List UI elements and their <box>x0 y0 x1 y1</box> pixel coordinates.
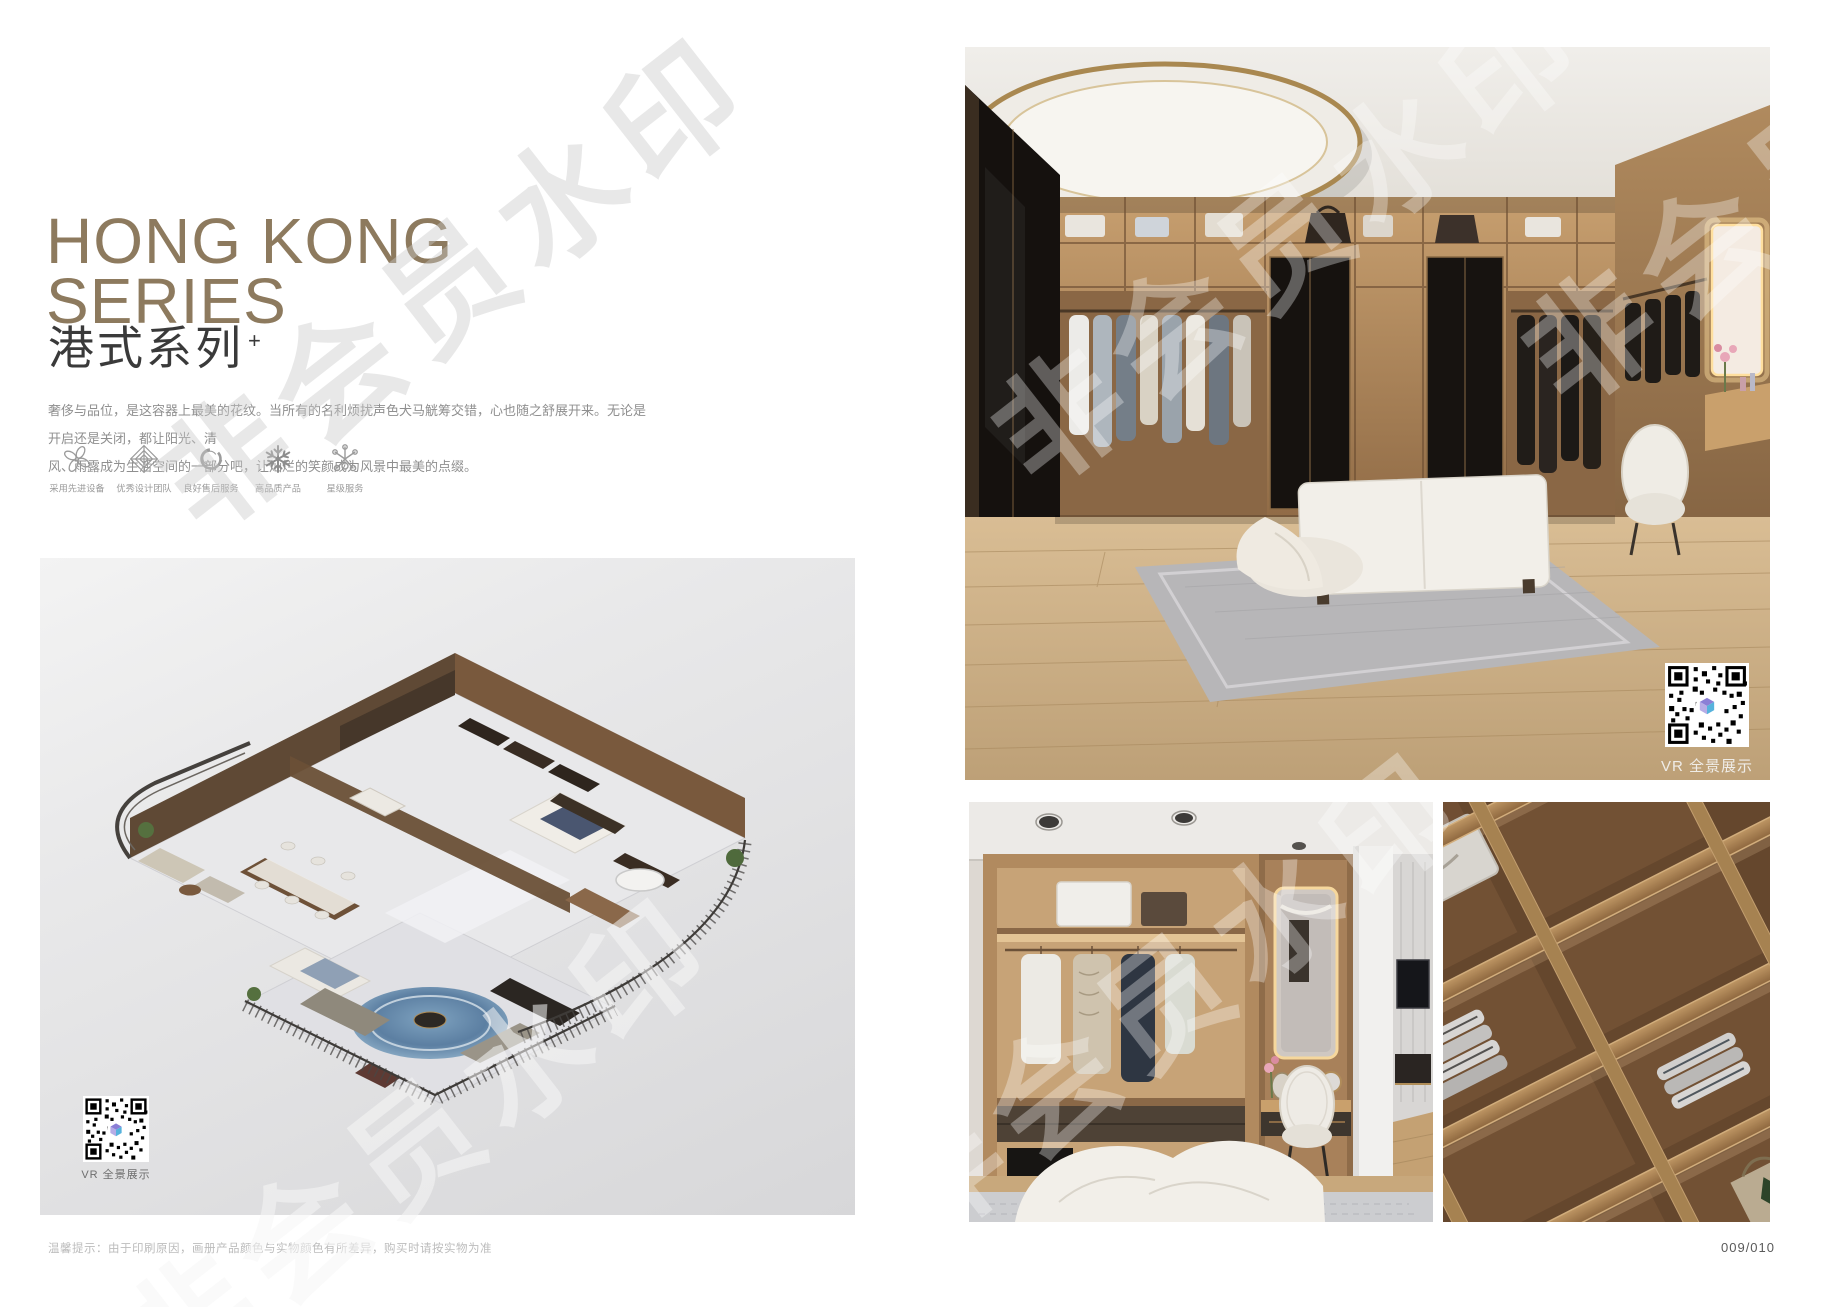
pinwheel-icon <box>60 442 94 476</box>
catalog-page: HONG KONG SERIES 港式系列+ 奢侈与品位，是这容器上最美的花纹。… <box>0 0 1836 1307</box>
vanity-corner-photo <box>969 802 1433 1222</box>
qr-code-image <box>1665 663 1749 747</box>
feature-label: 星级服务 <box>315 481 376 495</box>
feature-label: 优秀设计团队 <box>114 481 175 495</box>
floorplan-vr-caption: VR 全景展示 <box>81 1166 150 1182</box>
feature-label: 采用先进设备 <box>47 481 108 495</box>
vanity-corner-illustration <box>969 802 1433 1222</box>
floorplan-qr-code: VR 全景展示 <box>83 1096 149 1162</box>
feature-equipment: 采用先进设备 <box>44 442 110 495</box>
feature-star-service: 星级服务 <box>312 442 378 495</box>
main-photo-qr-code: VR 全景展示 <box>1665 663 1749 747</box>
series-title-line1: HONG KONG <box>46 211 453 271</box>
qr-code-image <box>83 1096 149 1162</box>
shelf-closeup-photo <box>1443 802 1770 1222</box>
main-room-photo <box>965 47 1770 780</box>
feature-label: 良好售后服务 <box>181 481 242 495</box>
plus-mark: + <box>248 328 264 353</box>
series-title-cn: 港式系列+ <box>48 312 264 378</box>
footer-disclaimer: 温馨提示：由于印刷原因，画册产品颜色与实物颜色有所差异，购买时请按实物为准 <box>48 1240 492 1256</box>
star-icon <box>328 442 362 476</box>
page-number: 009/010 <box>1721 1240 1775 1255</box>
feature-quality: 高品质产品 <box>245 442 311 495</box>
feature-after-sales: 良好售后服务 <box>178 442 244 495</box>
snowflake-icon <box>261 442 295 476</box>
main-vr-caption: VR 全景展示 <box>1661 755 1753 776</box>
isometric-floorplan <box>40 558 855 1215</box>
feature-design-team: 优秀设计团队 <box>111 442 177 495</box>
walk-in-closet-illustration <box>965 47 1770 780</box>
floorplan-panel: VR 全景展示 <box>40 558 855 1215</box>
shelf-closeup-illustration <box>1443 802 1770 1222</box>
feature-badges: 采用先进设备 优秀设计团队 良好售后服务 <box>44 442 379 495</box>
ring-icon <box>194 442 228 476</box>
feature-label: 高品质产品 <box>248 481 309 495</box>
diamond-icon <box>127 442 161 476</box>
